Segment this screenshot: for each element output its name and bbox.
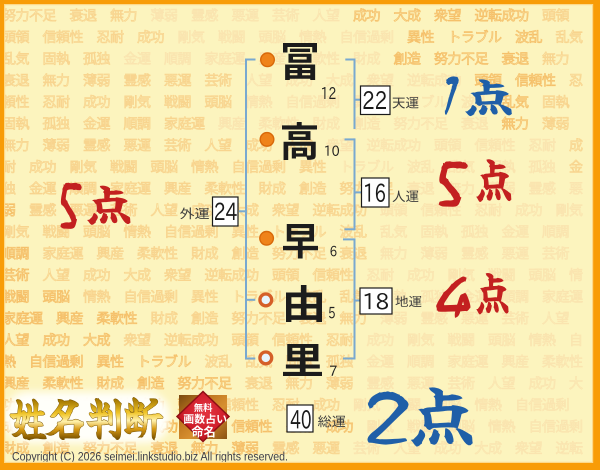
svg-text:Copyright (C) 2026 seimei.link: Copyright (C) 2026 seimei.linkstudio.biz… [12, 450, 288, 464]
